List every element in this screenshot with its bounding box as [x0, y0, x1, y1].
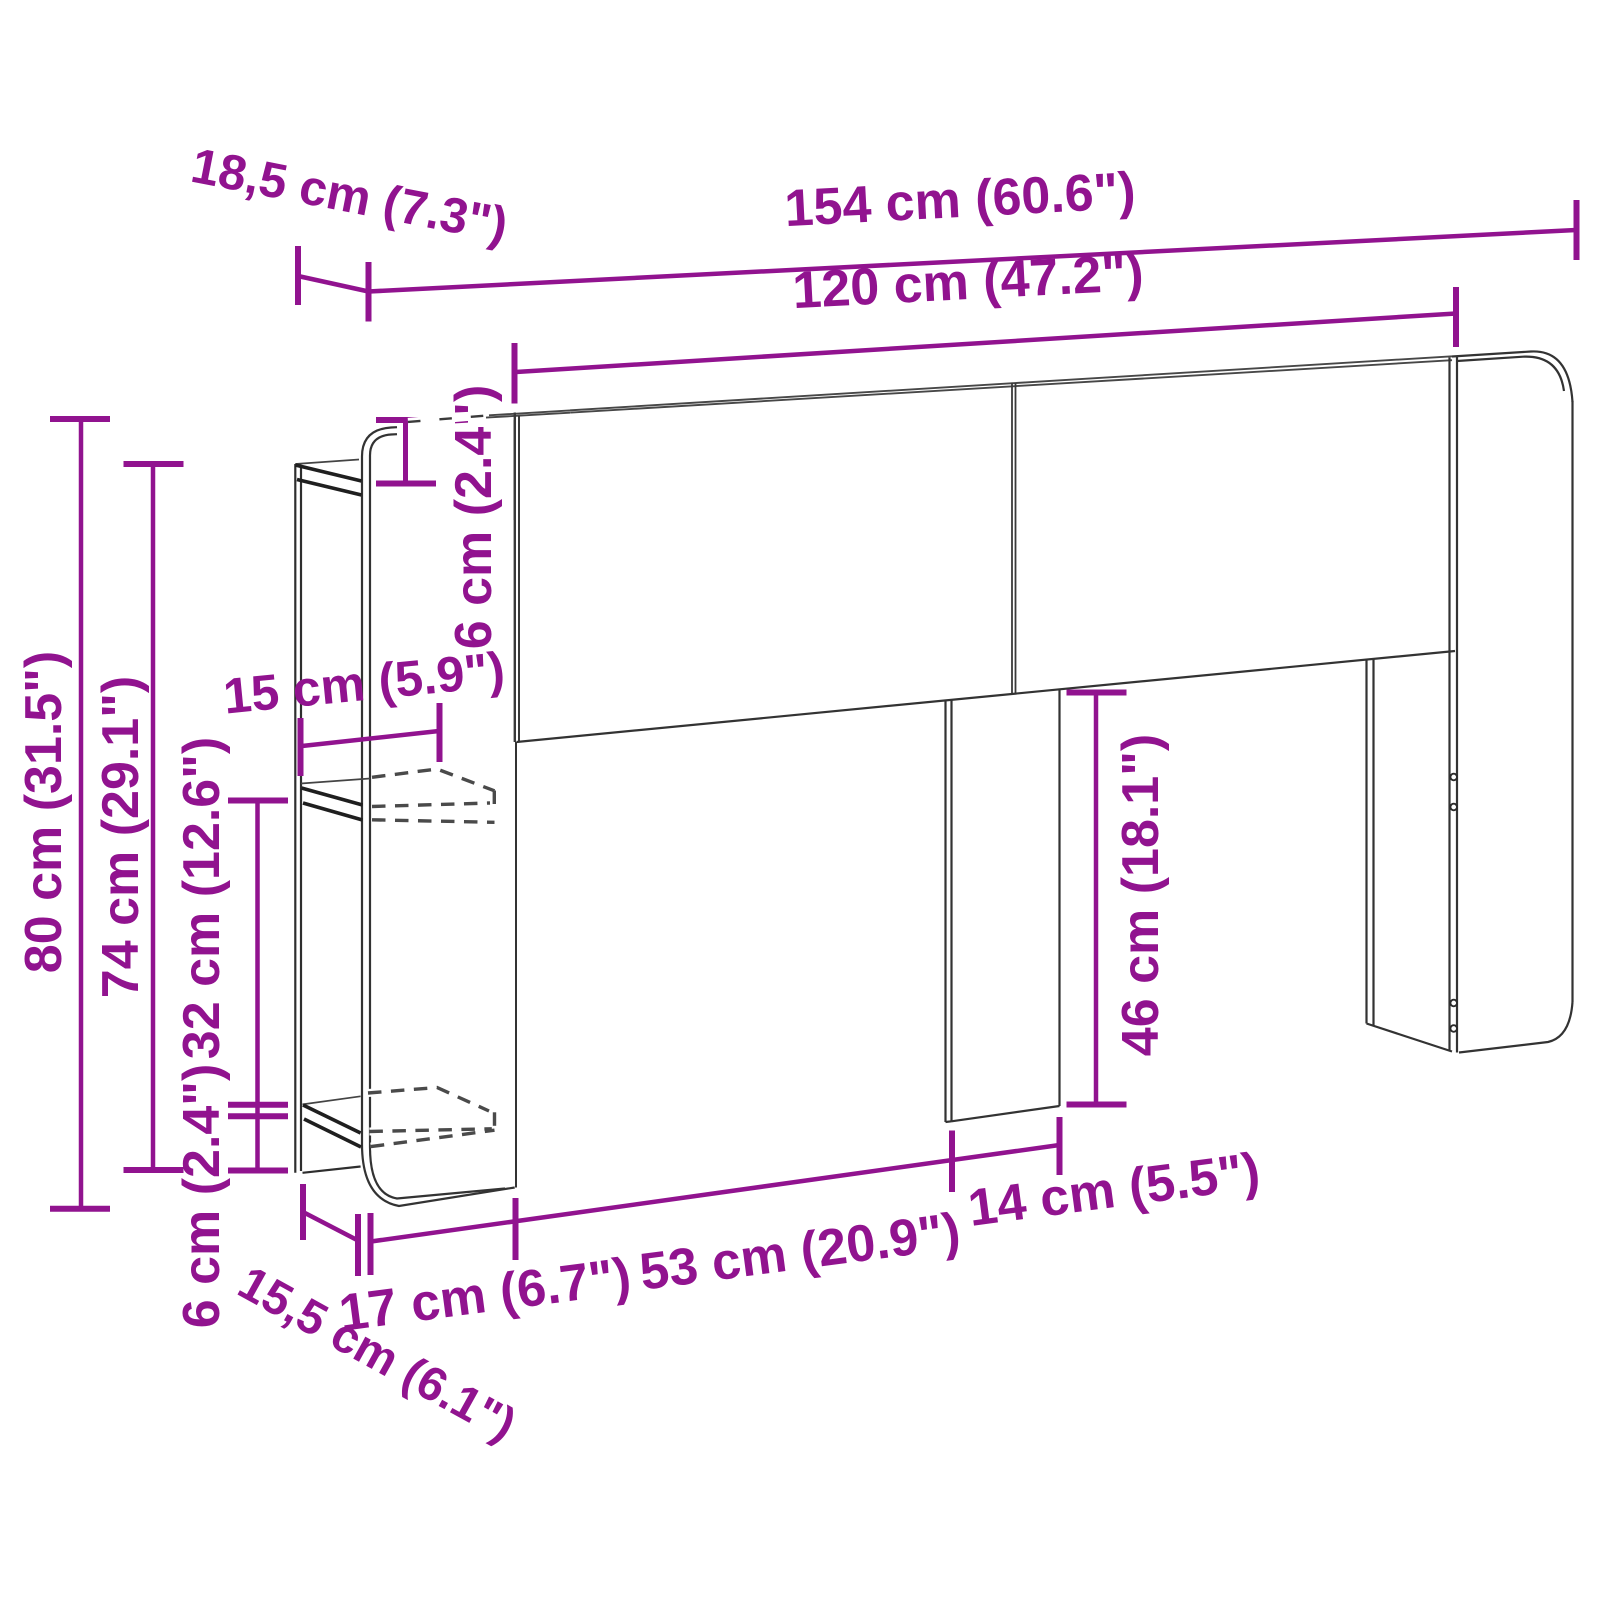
- svg-text:6 cm (2.4"): 6 cm (2.4"): [173, 1064, 231, 1329]
- svg-text:74 cm (29.1"): 74 cm (29.1"): [92, 676, 150, 998]
- svg-text:80 cm (31.5"): 80 cm (31.5"): [15, 651, 73, 973]
- svg-text:46 cm (18.1"): 46 cm (18.1"): [1112, 734, 1170, 1056]
- svg-text:32 cm (12.6"): 32 cm (12.6"): [173, 737, 231, 1059]
- svg-text:6 cm (2.4"): 6 cm (2.4"): [445, 385, 503, 650]
